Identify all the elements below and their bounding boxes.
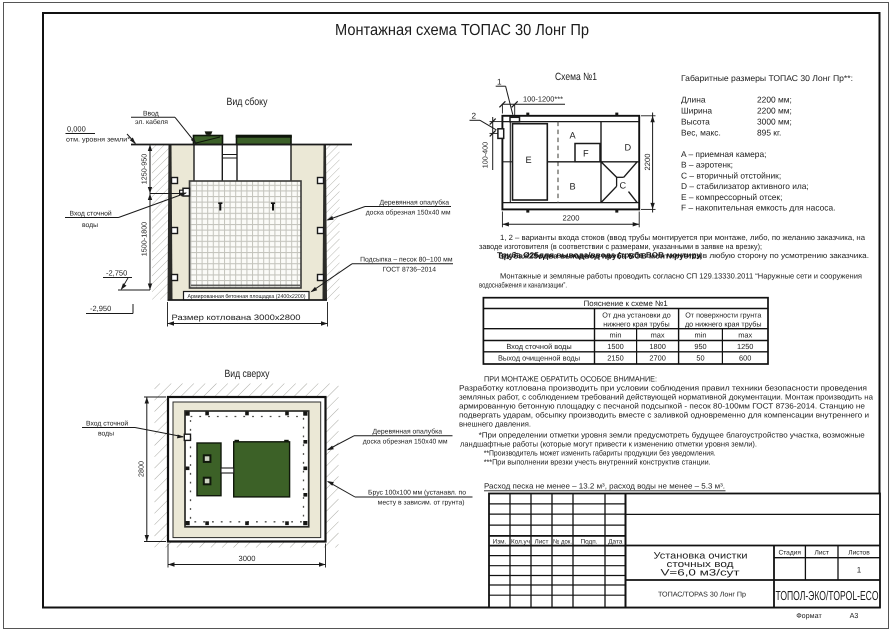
svg-text:2700: 2700 <box>649 353 665 362</box>
svg-text:Вес, макс.: Вес, макс. <box>681 128 721 138</box>
svg-text:E – компрессорный отсек;: E – компрессорный отсек; <box>681 192 782 202</box>
svg-text:Стадия: Стадия <box>778 550 801 557</box>
svg-text:Подп.: Подп. <box>581 539 598 546</box>
svg-text:Ширина: Ширина <box>681 106 712 116</box>
svg-text:Расход песка не менее – 13.2 м: Расход песка не менее – 13.2 м³, расход … <box>484 482 725 491</box>
svg-text:min: min <box>610 331 622 340</box>
svg-text:доска обрезная 150х40 мм: доска обрезная 150х40 мм <box>363 439 448 446</box>
svg-text:1500-1800: 1500-1800 <box>140 222 149 256</box>
svg-text:950: 950 <box>694 342 706 351</box>
svg-text:-2,750: -2,750 <box>106 269 127 278</box>
svg-text:эл. кабеля: эл. кабеля <box>135 119 168 126</box>
svg-text:водоснабжения и канализации”.: водоснабжения и канализации”. <box>479 281 567 290</box>
svg-text:воды: воды <box>98 431 114 438</box>
svg-text:1, 2 – варианты входа стоков: 1, 2 – варианты входа стоков (ввод трубы… <box>500 233 866 242</box>
svg-text:Вход сточной: Вход сточной <box>86 420 128 428</box>
svg-text:Размер котлована 3000х2800: Размер котлована 3000х2800 <box>172 313 302 322</box>
svg-text:Монтажные и земляные работы пр: Монтажные и земляные работы проводить со… <box>500 272 862 281</box>
svg-text:V=6,0 м3/сут: V=6,0 м3/сут <box>661 568 741 578</box>
svg-text:месту в зависим. от грунта): месту в зависим. от грунта) <box>378 500 465 507</box>
svg-text:Формат: Формат <box>796 611 822 620</box>
svg-text:ТОПАС/TOPAS 30 Лонг Пр: ТОПАС/TOPAS 30 Лонг Пр <box>658 591 746 599</box>
svg-text:Листов: Листов <box>848 550 870 557</box>
svg-text:1250: 1250 <box>737 342 753 351</box>
svg-text:ландшафтные работы (которые мо: ландшафтные работы (которые могут привес… <box>460 440 757 449</box>
svg-text:Схема №1: Схема №1 <box>555 71 597 83</box>
svg-text:B: B <box>570 182 576 192</box>
svg-text:Лист: Лист <box>815 550 829 557</box>
svg-text:max: max <box>738 331 752 340</box>
svg-text:)в любую сторону по усмотрению: )в любую сторону по усмотрению заказчика… <box>700 251 869 260</box>
svg-text:Вид сбоку: Вид сбоку <box>227 96 269 108</box>
svg-text:895 кг.: 895 кг. <box>757 128 781 138</box>
svg-text:1250-950: 1250-950 <box>140 154 149 184</box>
svg-text:Длина: Длина <box>681 95 706 105</box>
svg-text:Монтажная схема ТОПАС 30 Лонг: Монтажная схема ТОПАС 30 Лонг Пр <box>335 22 589 39</box>
svg-text:3000: 3000 <box>239 554 256 563</box>
svg-text:внешнего давления.: внешнего давления. <box>459 420 531 429</box>
svg-text:Пояснение к схеме №1: Пояснение к схеме №1 <box>584 299 668 308</box>
svg-text:Лист: Лист <box>535 539 549 546</box>
svg-text:***При выполнении врезки учест: ***При выполнении врезки учесть внутренн… <box>484 458 711 467</box>
svg-text:2150: 2150 <box>607 353 623 362</box>
svg-text:Дата: Дата <box>608 539 623 546</box>
svg-text:ПРИ МОНТАЖЕ ОБРАТИТЬ ОСОБОЕ ВН: ПРИ МОНТАЖЕ ОБРАТИТЬ ОСОБОЕ ВНИМАНИЕ: <box>484 375 657 384</box>
svg-text:Высота: Высота <box>681 117 710 127</box>
svg-text:0,000: 0,000 <box>67 125 86 134</box>
svg-text:2800: 2800 <box>137 461 146 477</box>
svg-text:1800: 1800 <box>649 342 665 351</box>
svg-text:ТОПОЛ-ЭКО/TOPOL-ECO: ТОПОЛ-ЭКО/TOPOL-ECO <box>776 588 879 603</box>
svg-text:C: C <box>620 181 627 191</box>
svg-text:B – аэротенк;: B – аэротенк; <box>681 160 733 170</box>
svg-text:Подсыпка – песок 80–100 мм: Подсыпка – песок 80–100 мм <box>360 257 453 264</box>
svg-text:воды: воды <box>82 222 98 229</box>
svg-text:600: 600 <box>739 353 751 362</box>
svg-text:100-1200***: 100-1200*** <box>523 95 563 104</box>
svg-text:Зрубаж25одва выюдвод пруба ВОВ: Зрубаж25одва выюдвод пруба ВОВ монтирует… <box>499 251 702 260</box>
svg-text:Брус 100х100 мм (устанавл. по: Брус 100х100 мм (устанавл. по <box>368 490 466 497</box>
svg-text:min: min <box>695 331 707 340</box>
svg-text:3000 мм;: 3000 мм; <box>757 117 792 127</box>
svg-text:подвергать ударам, обсыпку про: подвергать ударам, обсыпку производить в… <box>459 411 869 420</box>
svg-text:От дна установки до: От дна установки до <box>602 311 671 320</box>
svg-text:земляных работ, с соблюдением: земляных работ, с соблюдением требований… <box>459 393 874 402</box>
svg-text:D: D <box>625 143 632 153</box>
svg-text:От поверхности грунта: От поверхности грунта <box>685 311 761 320</box>
svg-text:нижнего края трубы: нижнего края трубы <box>603 319 669 328</box>
svg-text:Вход сточной воды: Вход сточной воды <box>506 342 571 351</box>
svg-text:2200 мм;: 2200 мм; <box>757 106 792 116</box>
svg-text:50: 50 <box>696 353 704 362</box>
svg-text:Выход очищенной воды: Выход очищенной воды <box>498 353 580 362</box>
svg-text:доска обрезная 150х40 мм: доска обрезная 150х40 мм <box>366 210 451 217</box>
svg-text:2200 мм;: 2200 мм; <box>757 95 792 105</box>
svg-text:D – стабилизатор активного ила: D – стабилизатор активного ила; <box>681 181 809 191</box>
svg-text:Изм.: Изм. <box>493 539 507 546</box>
svg-text:Кол.уч: Кол.уч <box>511 539 530 546</box>
svg-text:F – накопительная емкость для: F – накопительная емкость для насоса. <box>681 203 835 213</box>
svg-text:до нижнего края трубы: до нижнего края трубы <box>685 319 762 328</box>
svg-text:max: max <box>651 331 665 340</box>
svg-text:Деревянная опалубка: Деревянная опалубка <box>380 200 450 207</box>
svg-text:отм. уровня земли*: отм. уровня земли* <box>66 137 130 144</box>
svg-text:2200: 2200 <box>643 154 652 171</box>
svg-text:1: 1 <box>857 566 862 575</box>
svg-text:Габаритные размеры ТОПАС 30 Ло: Габаритные размеры ТОПАС 30 Лонг Пр**: <box>681 73 853 83</box>
svg-text:*При определении отметки уровн: *При определении отметки уровня земли пр… <box>479 431 865 440</box>
svg-text:F: F <box>583 149 589 159</box>
svg-text:-2,950: -2,950 <box>90 304 111 313</box>
svg-text:2200: 2200 <box>563 214 580 223</box>
svg-text:2: 2 <box>472 112 477 121</box>
svg-text:A – приемная камера;: A – приемная камера; <box>681 149 766 159</box>
svg-text:Ввод: Ввод <box>143 111 159 118</box>
svg-text:**Производитель может изменить: **Производитель может изменить габариты … <box>484 449 716 458</box>
svg-text:№ док.: № док. <box>553 539 572 546</box>
svg-text:Разработку котлована производи: Разработку котлована производить при усл… <box>459 384 867 393</box>
svg-text:1500: 1500 <box>607 342 623 351</box>
svg-text:Вход сточной: Вход сточной <box>70 210 112 218</box>
svg-text:100-400: 100-400 <box>481 142 490 168</box>
svg-text:армированную бетонную площадку: армированную бетонную площадку с песчано… <box>459 402 865 411</box>
svg-text:Деревянная опалубка: Деревянная опалубка <box>373 429 443 436</box>
svg-text:C – вторичный отстойник;: C – вторичный отстойник; <box>681 170 781 180</box>
svg-text:А3: А3 <box>850 611 859 620</box>
svg-text:E: E <box>526 155 532 165</box>
svg-text:1: 1 <box>497 78 502 87</box>
svg-text:A: A <box>570 131 577 141</box>
svg-text:Вид сверху: Вид сверху <box>225 368 271 380</box>
svg-text:ГОСТ 8736–2014: ГОСТ 8736–2014 <box>383 267 437 274</box>
